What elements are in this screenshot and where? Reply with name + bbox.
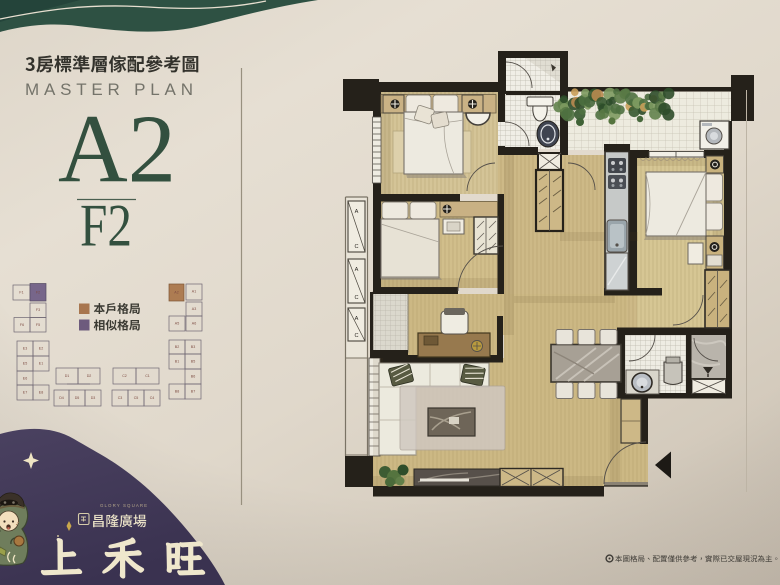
svg-text:F1: F1: [19, 291, 23, 295]
svg-text:E2: E2: [39, 347, 43, 351]
svg-text:E3: E3: [23, 347, 27, 351]
svg-text:GLORY SQUARE: GLORY SQUARE: [100, 503, 148, 508]
svg-text:F2: F2: [36, 291, 40, 295]
svg-text:C4: C4: [150, 396, 155, 400]
svg-text:E7: E7: [23, 391, 27, 395]
svg-text:D1: D1: [65, 374, 70, 378]
svg-text:D5: D5: [75, 396, 80, 400]
svg-text:E8: E8: [39, 391, 43, 395]
svg-text:F5: F5: [36, 323, 40, 327]
svg-text:D4: D4: [59, 396, 64, 400]
svg-text:A6: A6: [192, 322, 196, 326]
svg-text:F6: F6: [20, 323, 24, 327]
svg-text:E6: E6: [23, 377, 27, 381]
svg-text:E1: E1: [39, 362, 43, 366]
svg-text:D3: D3: [91, 396, 96, 400]
svg-text:D2: D2: [87, 374, 92, 378]
svg-text:C: C: [354, 333, 358, 339]
svg-text:E5: E5: [23, 362, 27, 366]
svg-text:C5: C5: [134, 396, 139, 400]
svg-text:A2: A2: [58, 96, 176, 204]
svg-text:B1: B1: [175, 360, 179, 364]
svg-text:C1: C1: [145, 374, 150, 378]
svg-text:A5: A5: [175, 322, 179, 326]
svg-text:B3: B3: [191, 345, 195, 349]
svg-text:C: C: [354, 295, 358, 301]
svg-text:C2: C2: [122, 374, 127, 378]
svg-text:A: A: [355, 267, 359, 273]
svg-text:B2: B2: [175, 345, 179, 349]
svg-text:F3: F3: [36, 308, 40, 312]
svg-text:A1: A1: [192, 290, 196, 294]
svg-text:C3: C3: [118, 396, 123, 400]
svg-text:A2: A2: [174, 291, 178, 295]
svg-text:C: C: [354, 244, 358, 250]
svg-text:A3: A3: [192, 307, 196, 311]
svg-text:F2: F2: [80, 193, 132, 259]
svg-text:B5: B5: [191, 360, 195, 364]
svg-text:A: A: [355, 209, 359, 215]
svg-text:B7: B7: [191, 390, 195, 394]
svg-text:A: A: [355, 316, 359, 322]
svg-text:B8: B8: [175, 390, 179, 394]
svg-text:B6: B6: [191, 375, 195, 379]
